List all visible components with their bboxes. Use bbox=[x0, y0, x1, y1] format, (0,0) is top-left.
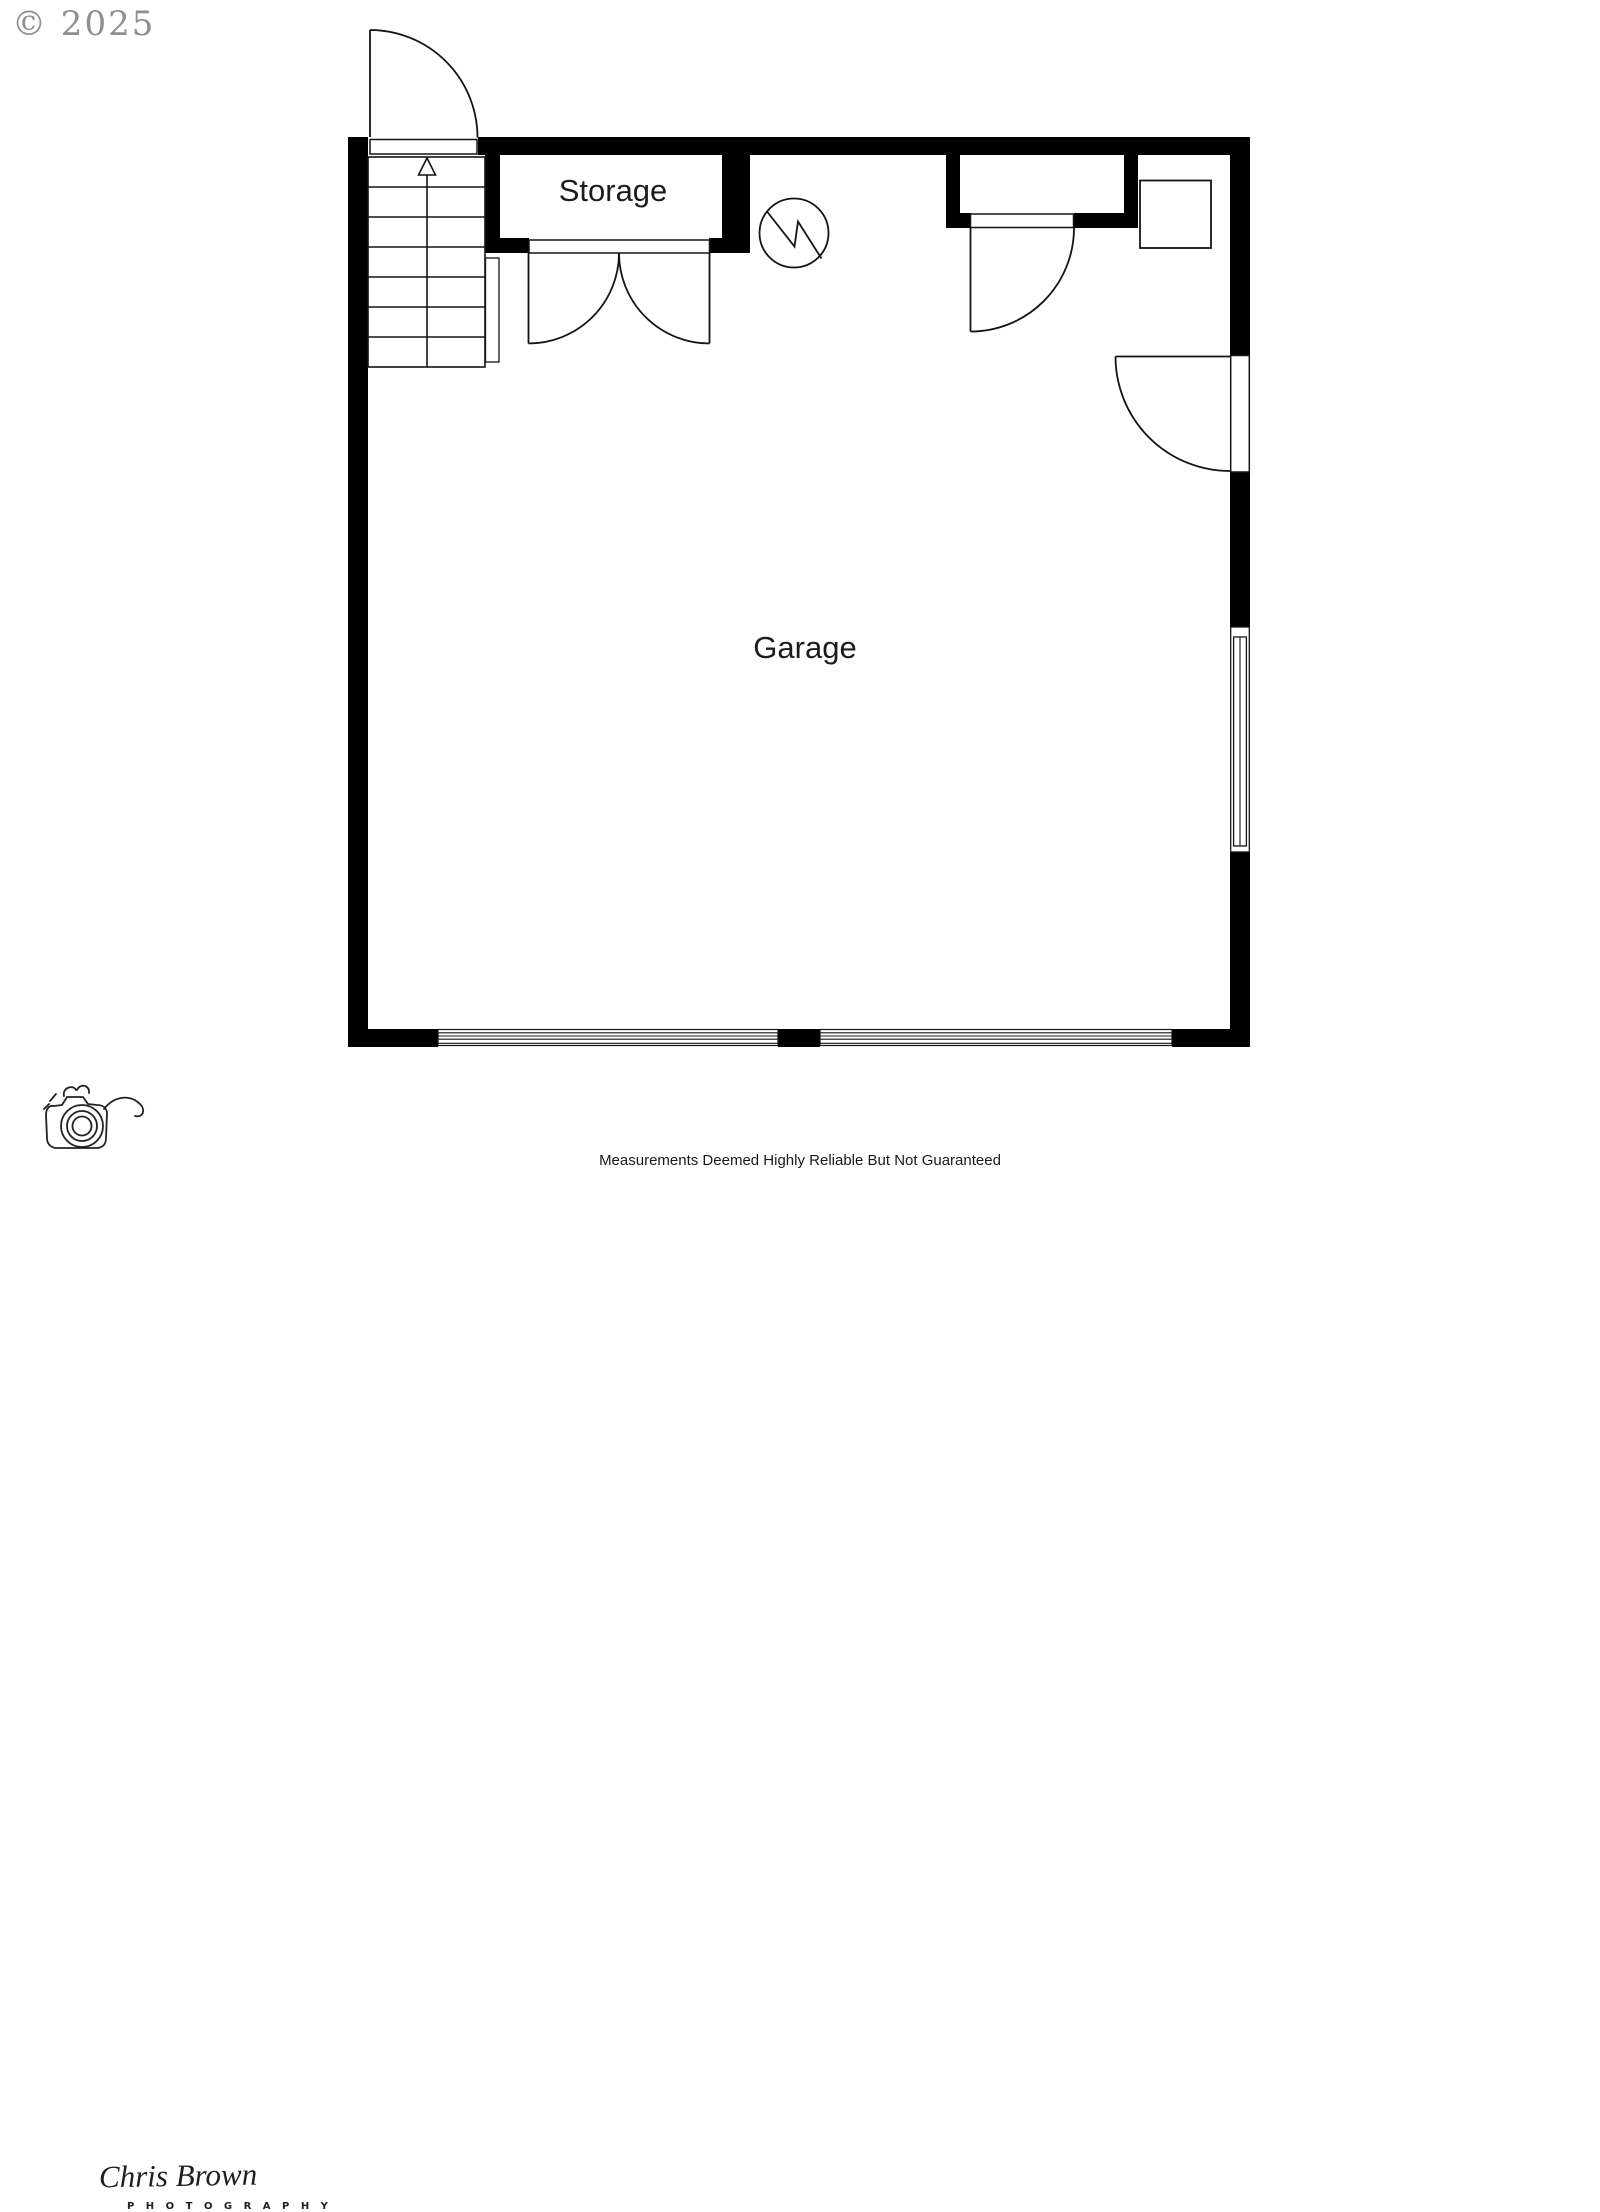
wall-top bbox=[478, 137, 1230, 155]
wall-left bbox=[348, 137, 368, 1047]
storage-bottom-wall-left bbox=[485, 238, 529, 253]
entry-door-threshold bbox=[370, 140, 477, 155]
storage-right-wall bbox=[722, 155, 750, 248]
garage-door-right-icon bbox=[820, 1030, 1172, 1046]
alcove-bottom-wall-left bbox=[946, 213, 971, 228]
side-door-jamb bbox=[1231, 356, 1250, 473]
garage-door-left-icon bbox=[438, 1030, 778, 1046]
stair-rail bbox=[486, 258, 500, 362]
utility-circle-symbol bbox=[760, 199, 829, 268]
storage-door-threshold bbox=[529, 240, 710, 253]
wall-right-mid bbox=[1230, 472, 1250, 627]
alcove-door-threshold bbox=[971, 214, 1074, 228]
disclaimer-text: Measurements Deemed Highly Reliable But … bbox=[599, 1152, 1001, 1169]
wall-right-upper bbox=[1230, 137, 1250, 355]
copyright-year: © 2025 bbox=[12, 4, 155, 44]
staircase bbox=[368, 157, 499, 367]
photographer-name: Chris Brown bbox=[99, 2157, 258, 2196]
camera-logo-icon bbox=[40, 1078, 160, 1154]
storage-double-door-left-icon bbox=[529, 253, 620, 344]
utility-circle-icon bbox=[760, 199, 829, 268]
photographer-subtitle: P H O T O G R A P H Y bbox=[127, 2201, 332, 2212]
window-right-wall bbox=[1231, 627, 1250, 852]
side-entry-door-swing-icon bbox=[1116, 357, 1231, 472]
photographer-watermark: Chris Brown P H O T O G R A P H Y bbox=[0, 1070, 300, 1160]
alcove-bottom-wall-right bbox=[1074, 213, 1138, 228]
door-thresholds bbox=[370, 140, 1249, 473]
wall-bottom-center-pier bbox=[778, 1029, 820, 1047]
wall-bottom-left-stub bbox=[368, 1029, 438, 1047]
entry-door-swing-top-icon bbox=[370, 30, 478, 138]
room-label-storage: Storage bbox=[559, 173, 668, 209]
wall-bottom-right-stub bbox=[1172, 1029, 1230, 1047]
floor-plan bbox=[0, 0, 1600, 1200]
room-label-garage: Garage bbox=[753, 630, 856, 666]
storage-double-door-right-icon bbox=[619, 253, 710, 344]
water-heater-square-icon bbox=[1140, 181, 1211, 249]
closet-door-swing-icon bbox=[971, 228, 1075, 332]
wall-right-lower bbox=[1230, 852, 1250, 1047]
